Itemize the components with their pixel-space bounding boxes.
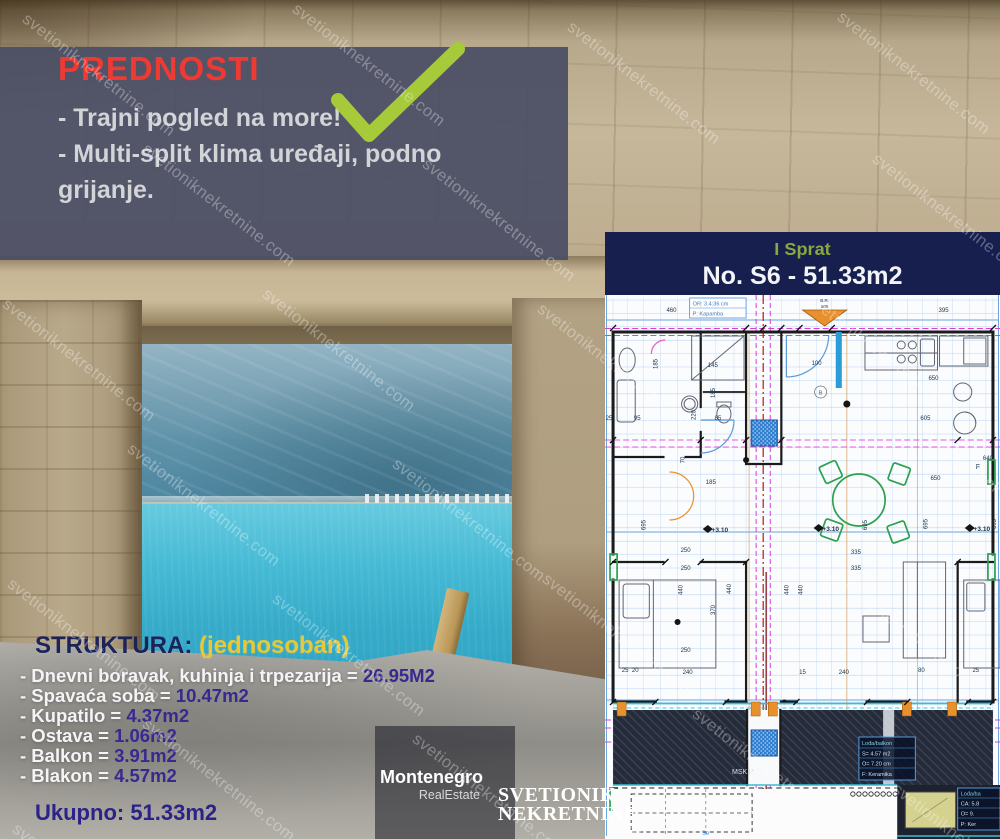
dim-label: 440	[784, 584, 790, 595]
structure-item: - Balkon = 3.91m2	[20, 746, 435, 766]
structure-item: - Ostava = 1.06m2	[20, 726, 435, 746]
dim-label: 695	[992, 518, 998, 529]
structure-item: - Kupatilo = 4.37m2	[20, 706, 435, 726]
lower-terrace	[613, 785, 1000, 839]
dim-label: 605	[920, 416, 931, 422]
floorplan-panel: OR: 3.4:36 cm P: Kapamba B.R. 505	[605, 232, 1000, 839]
dim-label: 85	[714, 416, 721, 422]
structure-section: STRUKTURA: (jednosoban) - Dnevni boravak…	[20, 632, 435, 826]
msk-label: MSK1*	[732, 769, 754, 776]
balcony-info-box-2: Lođa/ba CA: 5.8 O= 9. P: Ker	[958, 788, 1000, 830]
dim-label: 335	[851, 566, 862, 572]
dim-label: 650	[930, 476, 941, 482]
structure-item: - Blakon = 4.57m2	[20, 766, 435, 786]
unit-label: No. S6 - 51.33m2	[702, 262, 902, 290]
dim-label: 640	[983, 456, 994, 462]
agency-name-line2: NEKRETNINE	[498, 805, 637, 824]
dim-label: 15	[799, 670, 806, 676]
promo-image: PREDNOSTI - Trajni pogled na more! - Mul…	[0, 0, 1000, 839]
balcony-strip	[613, 702, 993, 788]
svg-text:505: 505	[821, 304, 829, 309]
mountain-ridge	[140, 344, 520, 502]
dim-label: 335	[851, 550, 862, 556]
mountain	[140, 344, 520, 502]
dim-label: +3.10	[974, 526, 991, 533]
advantages-title: PREDNOSTI	[58, 50, 260, 88]
apartment-type: (jednosoban)	[199, 632, 350, 659]
dim-label: 185	[706, 480, 717, 486]
partition-blue	[836, 332, 842, 388]
dim-label: 70	[681, 456, 687, 463]
brand-name: Montenegro	[380, 767, 480, 788]
svg-text:P: Kapamba: P: Kapamba	[693, 312, 724, 318]
balcony-info-box: Lođa/balkon S= 4.57 m2 O= 7.20 cm F: Ker…	[859, 737, 915, 780]
dim-label: 695	[923, 518, 929, 529]
dim-label: +3.10	[712, 527, 729, 534]
structure-heading: STRUKTURA: (jednosoban)	[20, 632, 435, 660]
dim-label: 95	[634, 416, 641, 422]
dim-label: 460	[666, 308, 677, 314]
dim-label: 80	[918, 668, 925, 674]
svg-text:OR: 3.4:36 cm: OR: 3.4:36 cm	[693, 302, 729, 308]
bullet-climate-cont: grijanje.	[58, 172, 441, 208]
total-area: Ukupno: 51.33m2	[20, 800, 435, 826]
dim-label: 695	[641, 519, 647, 530]
se-label: Se	[702, 831, 710, 837]
dim-label: 250	[681, 566, 692, 572]
svg-text:Lođa/ba: Lođa/ba	[961, 792, 982, 798]
dim-label: 145	[708, 363, 719, 369]
svg-text:O= 9.: O= 9.	[961, 812, 975, 818]
dim-label: 25	[606, 416, 613, 422]
dim-label: 250	[681, 548, 692, 554]
dim-label: 20	[632, 668, 639, 674]
agency-name: SVETIONIK NEKRETNINE	[498, 786, 637, 824]
dim-label: 440	[679, 584, 685, 595]
svg-text:B.R.: B.R.	[820, 298, 829, 303]
sea-view-photo	[140, 344, 520, 680]
svg-text:B: B	[819, 391, 823, 397]
dim-label: 695	[863, 519, 869, 530]
coastal-buildings	[365, 494, 515, 503]
structure-title: STRUKTURA:	[35, 632, 192, 659]
dim-label: 25	[622, 668, 629, 674]
dim-label: 440	[727, 583, 733, 594]
plan-title-box: OR: 3.4:36 cm P: Kapamba	[690, 298, 746, 318]
svg-text:O= 7.20 cm: O= 7.20 cm	[862, 762, 891, 768]
dim-label: F	[976, 464, 980, 471]
agency-logo: Montenegro RealEstate	[380, 735, 615, 835]
structure-item: - Dnevni boravak, kuhinja i trpezarija =…	[20, 666, 435, 686]
struktura-items: - Dnevni boravak, kuhinja i trpezarija =…	[20, 666, 435, 786]
dim-label: 650	[928, 376, 939, 382]
dim-label: +3.10	[822, 526, 839, 533]
svg-text:P: Ker: P: Ker	[961, 822, 977, 828]
dim-label: 370	[711, 604, 717, 615]
brand-sub: RealEstate	[380, 788, 480, 802]
dim-label: 185	[653, 358, 659, 369]
structure-item: - Spavaća soba = 10.47m2	[20, 686, 435, 706]
svg-text:F: Keramika: F: Keramika	[862, 772, 893, 778]
floorplan-drawing: OR: 3.4:36 cm P: Kapamba B.R. 505	[605, 232, 1000, 839]
dim-label: 25	[972, 668, 979, 674]
dim-label: 240	[839, 670, 850, 676]
dim-label: 100	[812, 361, 823, 367]
brand-block: Montenegro RealEstate	[380, 767, 480, 802]
svg-text:S= 4.57 m2: S= 4.57 m2	[862, 752, 890, 758]
dim-label: 440	[798, 584, 804, 595]
svg-text:CA: 5.8: CA: 5.8	[961, 802, 979, 808]
shaft-hatched	[751, 420, 777, 446]
dim-label: 240	[683, 670, 694, 676]
checkmark-icon	[328, 42, 466, 144]
dim-label: 220	[692, 409, 698, 420]
floor-label: I Sprat	[774, 239, 830, 259]
dim-label: 250	[681, 648, 692, 654]
svg-text:Lođa/balkon: Lođa/balkon	[862, 741, 892, 747]
dim-label: 185	[711, 387, 717, 398]
dim-label: 395	[939, 308, 950, 314]
